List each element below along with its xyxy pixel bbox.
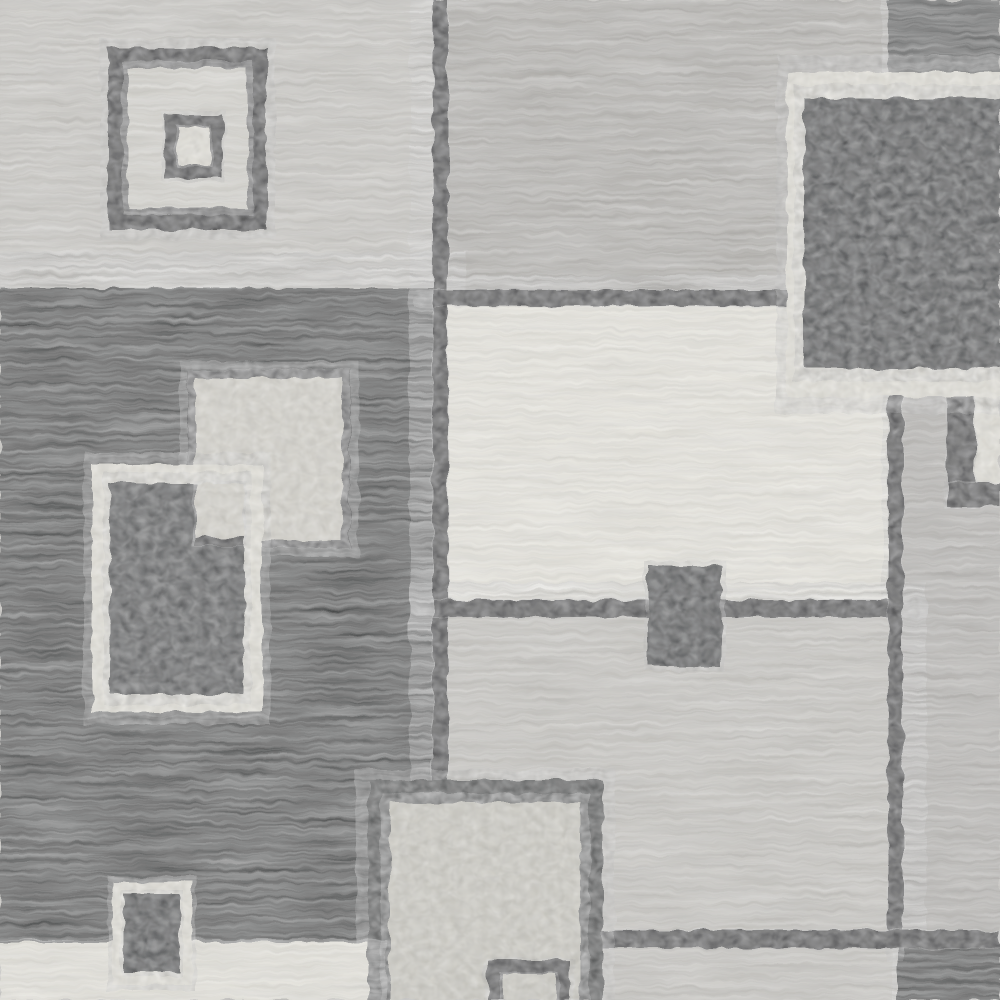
tl-inner-square-fill bbox=[178, 127, 210, 165]
right-edge-white-sliver bbox=[975, 397, 1000, 483]
right-edge-dark-corner-h bbox=[947, 483, 1000, 507]
bottom-rect-inner-fill bbox=[502, 974, 556, 1000]
center-small-dark-rect bbox=[648, 566, 722, 666]
tr-big-square-interior bbox=[804, 98, 1000, 368]
block-bottom-right-black bbox=[898, 946, 1000, 1000]
rug-photo bbox=[0, 0, 1000, 1000]
gridline-horizontal-bottom bbox=[577, 930, 1000, 948]
gridline-vertical-left bbox=[433, 0, 448, 790]
gridline-vertical-right bbox=[888, 395, 903, 935]
bl-small-rect-interior bbox=[124, 894, 180, 973]
rug-pattern-layers bbox=[0, 0, 1000, 1000]
area-rug-pattern bbox=[0, 0, 1000, 1000]
white-rect-overlap-light bbox=[196, 483, 244, 537]
white-rect-overlap-line bbox=[196, 537, 244, 546]
gridline-cream-top bbox=[433, 290, 790, 306]
